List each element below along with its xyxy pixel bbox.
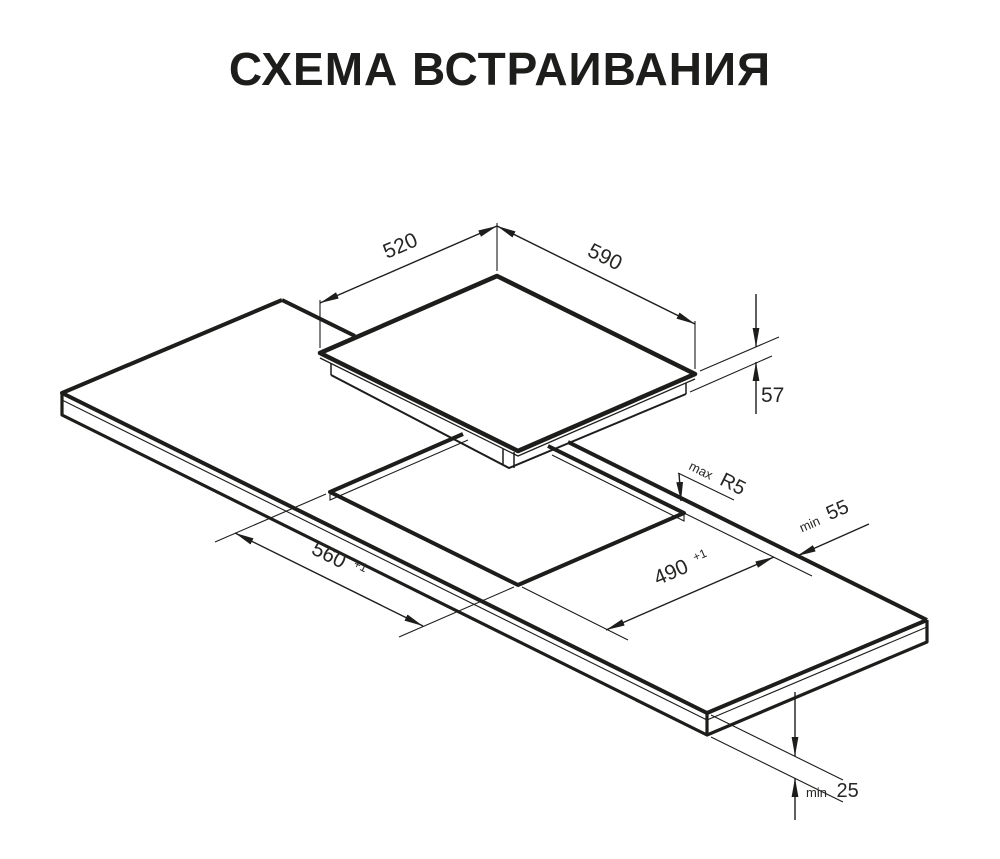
min-55-label: min 55 xyxy=(795,496,852,537)
min-25-value: 25 xyxy=(837,780,859,802)
min-55-value: 55 xyxy=(823,496,852,525)
dim-560-label: 560 +1 xyxy=(308,537,370,583)
annotation-max-r5: max R5 xyxy=(678,454,749,501)
min-25-prefix: min xyxy=(806,785,827,800)
dimension-min-25: min 25 xyxy=(711,692,859,820)
installation-diagram: 520 590 57 max R5 xyxy=(0,0,1000,859)
max-r5-value: R5 xyxy=(716,469,749,500)
dim-57-label: 57 xyxy=(761,384,784,407)
min-55-prefix: min xyxy=(797,513,822,535)
installation-scheme-page: СХЕМА ВСТРАИВАНИЯ xyxy=(0,0,1000,859)
worktop-top-face xyxy=(62,300,927,713)
dim-560-value: 560 xyxy=(308,537,350,573)
dimension-590: 590 xyxy=(497,226,695,369)
dimension-57: 57 xyxy=(690,294,784,414)
dim-590-label: 590 xyxy=(584,239,626,275)
min-25-label: min 25 xyxy=(806,780,859,802)
worktop xyxy=(62,300,927,735)
dim-520-label: 520 xyxy=(380,229,421,264)
max-r5-label: max R5 xyxy=(686,454,749,500)
